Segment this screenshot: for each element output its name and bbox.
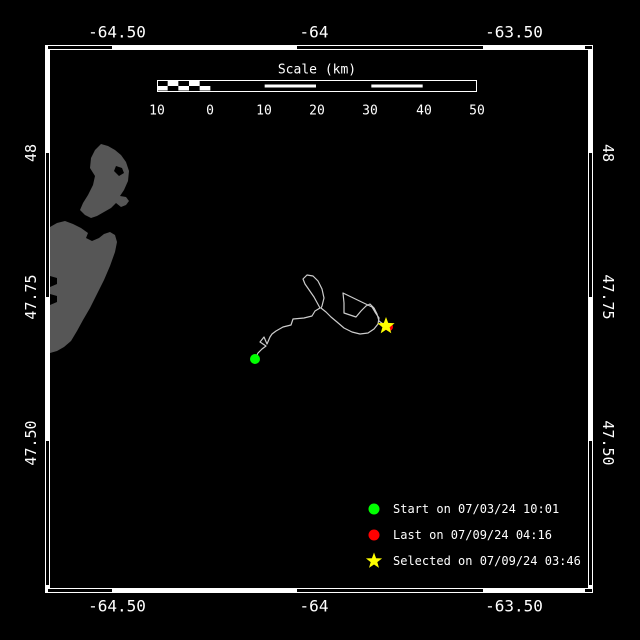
- scale-label-5: 40: [416, 104, 432, 119]
- left-axis-tick-0: 48: [22, 144, 40, 162]
- scale-bar-title: Scale (km): [278, 63, 356, 78]
- legend-start-label: Start on 07/03/24 10:01: [393, 502, 559, 516]
- legend-item-last: Last on 07/09/24 04:16: [364, 525, 552, 545]
- legend-item-selected: Selected on 07/09/24 03:46: [364, 551, 581, 571]
- scale-label-1: 0: [206, 104, 214, 119]
- legend-selected-label: Selected on 07/09/24 03:46: [393, 554, 581, 568]
- legend-item-start: Start on 07/03/24 10:01: [364, 499, 559, 519]
- legend-last-label: Last on 07/09/24 04:16: [393, 528, 552, 542]
- scale-label-4: 30: [362, 104, 378, 119]
- left-axis-tick-2: 47.50: [22, 420, 40, 465]
- last-marker-icon: [364, 525, 384, 545]
- bottom-axis-tick-1: -64: [300, 597, 329, 616]
- trajectory-map-view: -64.50 -64 -63.50 -64.50 -64 -63.50 48 4…: [0, 0, 640, 640]
- bottom-axis-tick-2: -63.50: [485, 597, 543, 616]
- right-axis-tick-0: 48: [599, 144, 617, 162]
- selected-marker-icon: [364, 551, 384, 571]
- top-axis-tick-1: -64: [300, 23, 329, 42]
- right-axis-tick-2: 47.50: [599, 420, 617, 465]
- top-axis-tick-0: -64.50: [88, 23, 146, 42]
- scale-label-6: 50: [469, 104, 485, 119]
- scale-label-0: 10: [149, 104, 165, 119]
- scale-label-3: 20: [309, 104, 325, 119]
- scale-label-2: 10: [256, 104, 272, 119]
- top-axis-tick-2: -63.50: [485, 23, 543, 42]
- right-axis-tick-1: 47.75: [599, 274, 617, 319]
- left-axis-tick-1: 47.75: [22, 274, 40, 319]
- start-marker-icon: [364, 499, 384, 519]
- bottom-axis-tick-0: -64.50: [88, 597, 146, 616]
